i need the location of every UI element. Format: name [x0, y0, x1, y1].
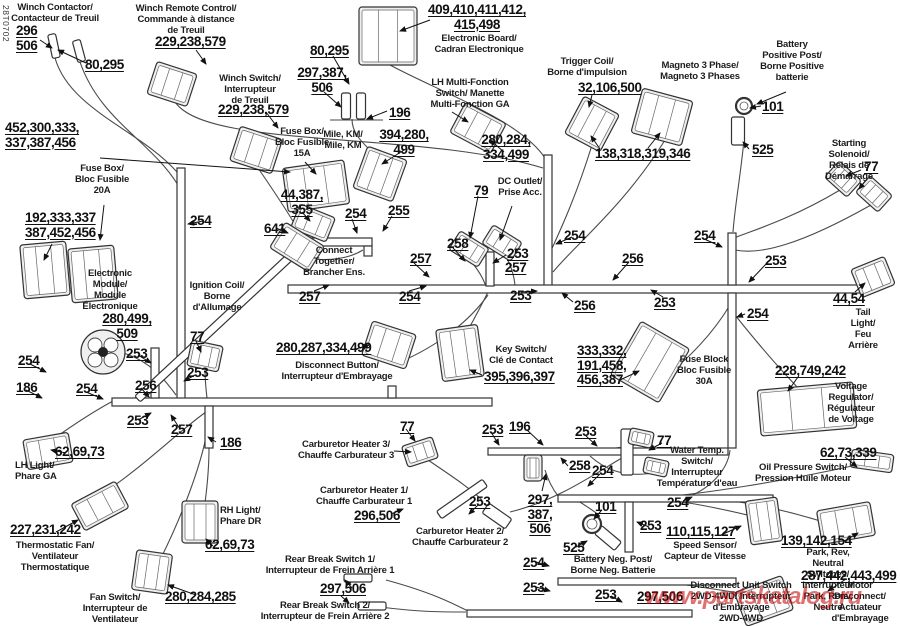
label-speed-sensor: Speed Sensor/ Capteur de Vitesse [664, 540, 746, 562]
label-m-139: 139,142,154 [781, 534, 852, 549]
label-m-280-284-334: 280,284, 334,499 [481, 133, 530, 162]
label-fan-switch: Fan Switch/ Interrupteur de Ventilateur [83, 592, 148, 625]
label-m-297-506-a: 297,506 [320, 582, 366, 597]
label-m-77-b: 77 [190, 330, 204, 345]
label-electronic-board: Electronic Board/ Cadran Electronique [434, 33, 523, 55]
label-dc-outlet: DC Outlet/ Prise Acc. [498, 176, 542, 198]
label-m-101-a: 101 [762, 100, 783, 115]
label-voltage-regulator: Voltage Regulator/ Régulateur de Voltage [827, 381, 876, 425]
label-m-227: 227,231,242 [10, 523, 81, 538]
label-m-296-506: 296 506 [16, 24, 37, 53]
label-m-258-b: 258 [569, 459, 590, 474]
label-carb-heater-1: Carburetor Heater 1/ Chauffe Carburateur… [316, 485, 412, 507]
label-m-254-k: 254 [523, 556, 544, 571]
label-oil-pressure: Oil Pressure Switch/ Pression Huile Mote… [755, 462, 851, 484]
label-m-257-c: 257 [299, 290, 320, 305]
label-m-62-73-339: 62,73,339 [820, 446, 876, 461]
label-m-62-69-73-a: 62,69,73 [55, 445, 104, 460]
label-fuse-block-30: Fuse Block Bloc Fusible 30A [677, 354, 731, 387]
label-m-255: 255 [388, 204, 409, 219]
label-m-280-287: 280,287,334,499 [276, 341, 371, 356]
label-m-256-a: 256 [622, 252, 643, 267]
label-rear-break-1: Rear Break Switch 1/ Interrupteur de Fre… [266, 554, 395, 576]
label-m-253-b: 253 [765, 254, 786, 269]
label-m-257-d: 257 [171, 423, 192, 438]
label-m-254-d: 254 [694, 229, 715, 244]
label-m-394: 394,280, 499 [379, 128, 428, 157]
label-m-253-d: 253 [654, 296, 675, 311]
label-electronic-module: Electronic Module/ Module Électronique [82, 268, 137, 312]
label-m-79: 79 [474, 184, 488, 199]
label-m-297-387-506-a: 297,387, 506 [297, 66, 346, 95]
wiring-diagram-canvas: Winch Contactor/ Contacteur de TreuilWin… [0, 0, 900, 626]
label-m-254-j: 254 [667, 496, 688, 511]
label-water-temp: Water Temp. Switch/ Interrupteur Tempéra… [657, 445, 738, 489]
label-key-switch: Key Switch/ Clé de Contact [489, 344, 553, 366]
label-m-253-m: 253 [595, 588, 616, 603]
label-battery-neg: Battery Neg. Post/ Borne Neg. Batterie [571, 554, 656, 576]
label-m-101-b: 101 [595, 500, 616, 515]
label-m-641: 641 [264, 222, 285, 237]
label-m-77-c: 77 [400, 420, 414, 435]
label-disconnect-button: Disconnect Button/ Interrupteur d'Embray… [282, 360, 393, 382]
label-mile-km: Mile, KM/ Mile, KM [323, 129, 362, 151]
label-m-196-b: 196 [509, 420, 530, 435]
label-m-452: 452,300,333, 337,387,456 [5, 121, 79, 150]
label-trigger-coil: Trigger Coil/ Borne d'impulsion [547, 56, 627, 78]
label-m-254-b: 254 [190, 214, 211, 229]
label-ignition-coil: Ignition Coil/ Borne d'Allumage [190, 280, 245, 313]
label-m-525-a: 525 [752, 143, 773, 158]
label-m-253-l: 253 [523, 581, 544, 596]
label-fuse-box-20: Fuse Box/ Bloc Fusible 20A [75, 163, 129, 196]
label-m-253-g: 253 [127, 414, 148, 429]
label-m-333: 333,332, 191,458, 456,387 [577, 344, 626, 388]
label-m-80-295-b: 80,295 [310, 44, 349, 59]
label-m-256-c: 256 [135, 379, 156, 394]
label-m-253-j: 253 [469, 495, 490, 510]
label-m-395: 395,396,397 [484, 370, 555, 385]
label-m-257-b: 257 [505, 261, 526, 276]
label-m-229-a: 229,238,579 [155, 35, 226, 50]
label-m-62-69-73-b: 62,69,73 [205, 538, 254, 553]
label-m-287-442: 287,442,443,499 [801, 569, 896, 584]
label-m-253-k: 253 [640, 519, 661, 534]
label-m-138-318: 138,318,319,346 [595, 147, 690, 162]
label-m-280-499-509: 280,499, 509 [102, 312, 151, 341]
label-m-253-f: 253 [187, 366, 208, 381]
label-carb-heater-3: Carburetor Heater 3/ Chauffe Carburateur… [298, 439, 394, 461]
diagram-code: 28T0702 [1, 5, 11, 42]
label-m-228: 228,749,242 [775, 364, 846, 379]
label-tail-light: Tail Light/ Feu Arrière [845, 307, 882, 351]
label-battery-positive: Battery Positive Post/ Borne Positive ba… [760, 39, 824, 83]
label-lh-light: LH Light/ Phare GA [15, 460, 57, 482]
label-m-254-i: 254 [592, 464, 613, 479]
label-carb-heater-2: Carburetor Heater 2/ Chauffe Carburateur… [412, 526, 508, 548]
label-m-258-a: 258 [447, 237, 468, 252]
label-m-186-b: 186 [220, 436, 241, 451]
label-magneto: Magneto 3 Phase/ Magneto 3 Phases [660, 60, 740, 82]
label-winch-contactor: Winch Contactor/ Contacteur de Treuil [11, 2, 99, 24]
label-m-192: 192,333,337 387,452,456 [25, 211, 96, 240]
label-m-229-b: 229,238,579 [218, 103, 289, 118]
label-m-254-g: 254 [18, 354, 39, 369]
label-m-254-e: 254 [399, 290, 420, 305]
label-rear-break-2: Rear Break Switch 2/ Interrupteur de Fre… [261, 600, 390, 622]
label-m-253-i: 253 [575, 425, 596, 440]
watermark: www.partskatalog.ru [645, 583, 861, 611]
label-m-77-d: 77 [657, 434, 671, 449]
label-winch-remote: Winch Remote Control/ Commande à distanc… [136, 3, 237, 36]
label-m-254-c: 254 [564, 229, 585, 244]
label-thermostatic-fan: Thermostatic Fan/ Ventilateur Thermostat… [16, 540, 94, 573]
label-lh-multifunction: LH Multi-Fonction Switch/ Manette Multi-… [431, 77, 510, 110]
label-m-196-a: 196 [389, 106, 410, 121]
label-m-186-a: 186 [16, 381, 37, 396]
label-m-80-295-a: 80,295 [85, 58, 124, 73]
label-m-44-54: 44,54 [833, 292, 865, 307]
label-m-254-a: 254 [345, 207, 366, 222]
label-m-110: 110,115,127 [666, 525, 735, 540]
label-m-254-f: 254 [747, 307, 768, 322]
label-m-280-284-285: 280,284,285 [165, 590, 236, 605]
label-rh-light: RH Light/ Phare DR [220, 505, 261, 527]
label-m-296-506-b: 296,506 [354, 509, 400, 524]
label-connect-together: Connect Together/ Brancher Ens. [303, 245, 365, 278]
label-m-44-387-355: 44,387, 355 [281, 188, 323, 217]
label-m-77-a: 77 [864, 160, 878, 175]
label-m-256-b: 256 [574, 299, 595, 314]
label-m-409: 409,410,411,412, 415,498 [428, 3, 526, 32]
label-m-32-106-500: 32,106,500 [578, 81, 642, 96]
label-m-253-e: 253 [126, 347, 147, 362]
label-m-525-b: 525 [563, 541, 584, 556]
label-m-297-387-506-b: 297, 387, 506 [528, 493, 553, 537]
label-m-253-h: 253 [482, 423, 503, 438]
label-m-254-h: 254 [76, 382, 97, 397]
label-m-257-a: 257 [410, 252, 431, 267]
label-m-253-c: 253 [510, 289, 531, 304]
label-fuse-box-15: Fuse Box/ Bloc Fusible 15A [275, 126, 329, 159]
